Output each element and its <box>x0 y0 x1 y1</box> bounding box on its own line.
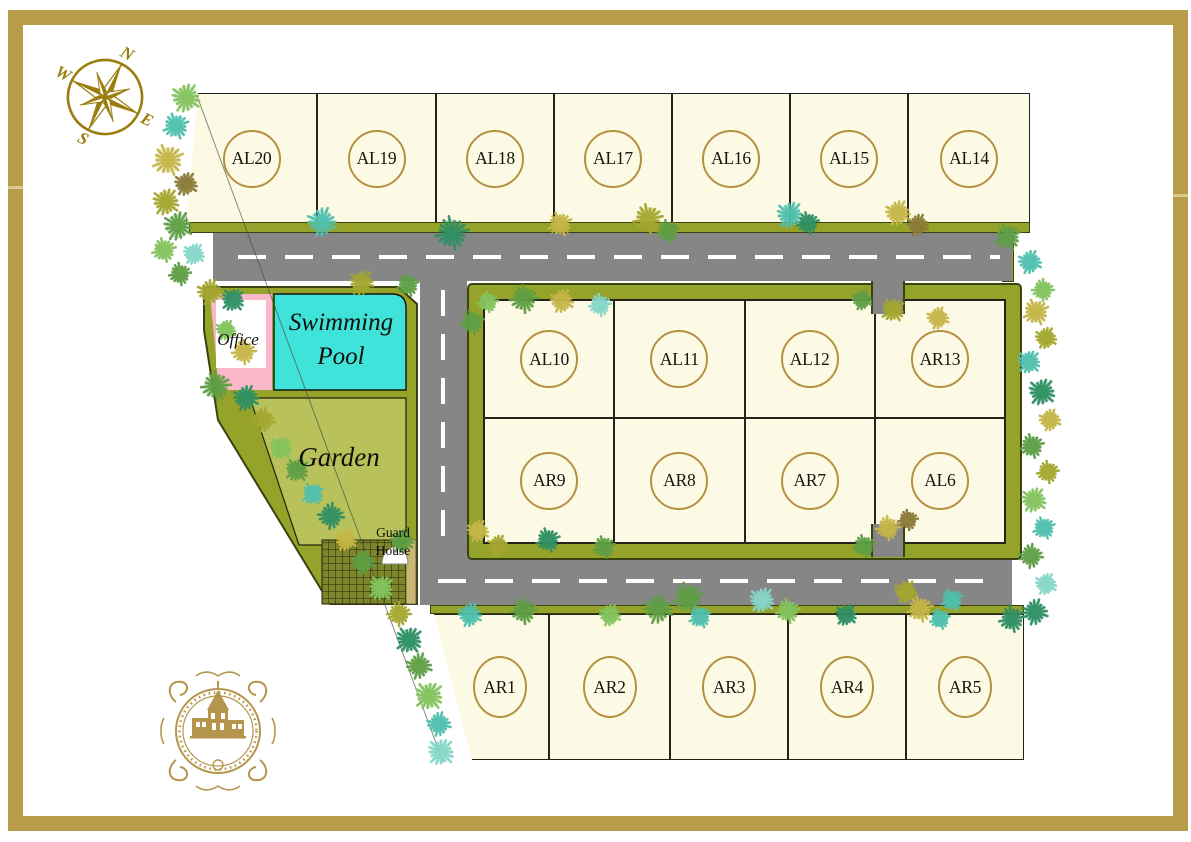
lot-al11: AL11 <box>614 300 744 418</box>
tree-icon <box>398 629 421 652</box>
middle-block: AL10 AL11 AL12 AR13 AR9 AR8 AR7 AL6 <box>483 299 1006 544</box>
tree-icon <box>1019 352 1039 372</box>
lot-al10: AL10 <box>484 300 614 418</box>
tree-icon <box>1032 279 1054 301</box>
lot-badge-al14: AL14 <box>940 130 998 188</box>
tree-icon <box>1024 300 1048 324</box>
estate-logo-icon <box>156 668 280 794</box>
office-label: Office <box>204 330 272 350</box>
lot-al16: AL16 <box>672 93 790 224</box>
lot-ar9: AR9 <box>484 418 614 543</box>
lot-al19: AL19 <box>317 93 436 224</box>
lot-ar5: AR5 <box>906 614 1024 760</box>
tree-icon <box>1040 410 1060 430</box>
lot-al15: AL15 <box>790 93 908 224</box>
tree-icon <box>152 238 175 261</box>
lot-ar1: AR1 <box>420 614 549 760</box>
lot-al14: AL14 <box>908 93 1030 224</box>
lot-badge-ar13: AR13 <box>911 330 969 388</box>
lot-al20: AL20 <box>186 93 317 224</box>
lot-al12: AL12 <box>745 300 875 418</box>
site-plan: N W E S <box>0 0 1191 842</box>
lot-badge-al10: AL10 <box>520 330 578 388</box>
tree-icon <box>1030 380 1054 404</box>
lot-badge-al19: AL19 <box>348 130 406 188</box>
lot-badge-ar1: AR1 <box>473 656 527 718</box>
tree-icon <box>1034 518 1055 539</box>
lot-ar8: AR8 <box>614 418 744 543</box>
lot-ar13: AR13 <box>875 300 1005 418</box>
lot-badge-al6: AL6 <box>911 452 969 510</box>
lot-badge-ar9: AR9 <box>520 452 578 510</box>
tree-icon <box>154 190 178 214</box>
tree-icon <box>169 263 191 285</box>
lot-ar7: AR7 <box>745 418 875 543</box>
guard-house-label: Guard House <box>361 524 425 560</box>
compass-rose: N W E S <box>46 38 164 156</box>
lot-al18: AL18 <box>436 93 554 224</box>
tree-icon <box>1036 574 1056 594</box>
frame-joint-left <box>8 186 23 189</box>
lot-ar3: AR3 <box>670 614 788 760</box>
tree-icon <box>184 244 203 263</box>
lot-badge-ar3: AR3 <box>702 656 756 718</box>
lot-ar4: AR4 <box>788 614 906 760</box>
lot-badge-ar7: AR7 <box>781 452 839 510</box>
lot-badge-al16: AL16 <box>702 130 760 188</box>
lot-badge-al12: AL12 <box>781 330 839 388</box>
lot-ar2: AR2 <box>549 614 670 760</box>
swimming-pool-label: Swimming Pool <box>278 306 404 374</box>
tree-icon <box>1023 489 1046 512</box>
tree-icon <box>1036 328 1056 348</box>
tree-icon <box>1019 251 1041 273</box>
tree-icon <box>417 684 441 708</box>
tree-icon <box>1019 544 1043 568</box>
green-strip-bottom <box>430 605 1024 614</box>
road-top-centerline <box>238 255 1000 259</box>
green-strip-top <box>189 222 1030 233</box>
tree-icon <box>427 712 450 735</box>
compass-star-icon <box>46 38 164 156</box>
lot-badge-ar4: AR4 <box>820 656 874 718</box>
tree-icon <box>173 85 199 111</box>
lot-badge-al20: AL20 <box>223 130 281 188</box>
tree-icon <box>1037 461 1059 483</box>
tree-icon <box>429 740 452 763</box>
garden-label: Garden <box>278 442 400 473</box>
driveway-stub-top <box>871 281 905 314</box>
lot-al17: AL17 <box>554 93 672 224</box>
tree-icon <box>1020 434 1043 457</box>
estate-logo <box>156 668 280 794</box>
tree-icon <box>1023 600 1048 625</box>
lot-badge-al11: AL11 <box>650 330 708 388</box>
tree-icon <box>407 654 432 679</box>
tree-icon <box>164 114 189 139</box>
lot-badge-al17: AL17 <box>584 130 642 188</box>
lot-badge-al18: AL18 <box>466 130 524 188</box>
driveway-stub-bottom <box>871 524 905 557</box>
frame-joint-right <box>1173 194 1188 197</box>
lot-badge-ar5: AR5 <box>938 656 992 718</box>
road-vertical-centerline <box>441 290 445 548</box>
lot-badge-al15: AL15 <box>820 130 878 188</box>
lot-badge-ar8: AR8 <box>650 452 708 510</box>
road-bottom-centerline <box>438 579 1000 583</box>
lot-badge-ar2: AR2 <box>583 656 637 718</box>
